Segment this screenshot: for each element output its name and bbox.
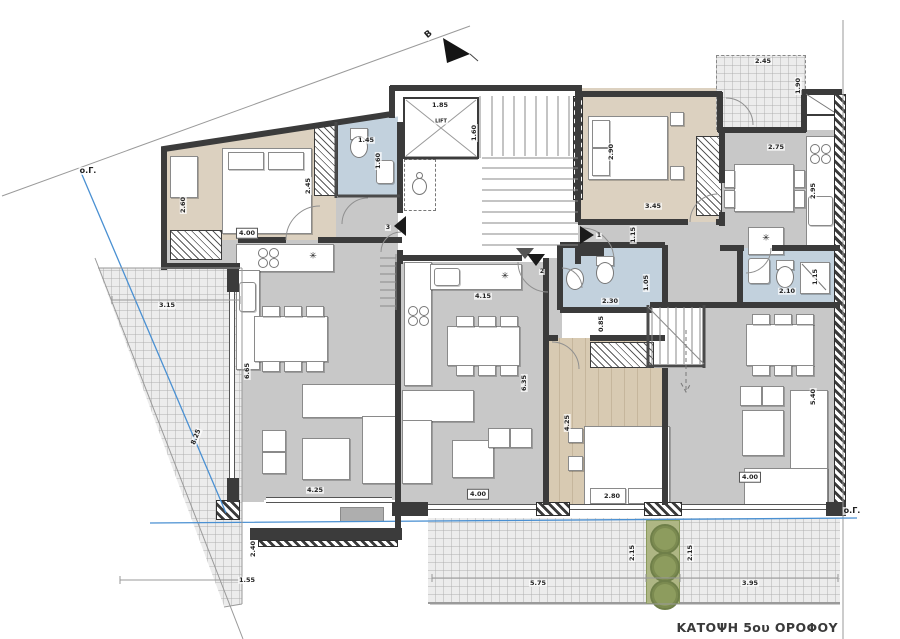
dimension-label: 1.15: [812, 268, 819, 286]
dimension-label: 4.00: [236, 228, 258, 239]
dimension-label: 4.15: [474, 293, 492, 300]
dimension-label: 2.15: [687, 544, 694, 562]
dimension-label: 1.90: [795, 77, 802, 95]
dimension-label: 4.25: [306, 487, 324, 494]
dimension-label: 4.00: [739, 472, 761, 483]
floor-plan-canvas: ο.Γ.ο.Γ.B1.85LIFT1.601.451.602.452.604.0…: [0, 0, 900, 639]
dimension-label: 3.45: [644, 203, 662, 210]
appliance-icon: ✳: [761, 235, 771, 244]
dimension-label: 8.25: [190, 427, 203, 446]
dimension-label: 3.95: [741, 580, 759, 587]
boundary-label: ο.Γ.: [79, 167, 98, 175]
dimension-label: 2.80: [603, 493, 621, 500]
dimension-label: 3.15: [158, 302, 176, 309]
dimension-label: 6.65: [244, 362, 251, 380]
dimension-label: 1.60: [375, 152, 382, 170]
lift-label: LIFT: [434, 120, 448, 125]
dimension-label: 1.55: [238, 577, 256, 584]
boundary-label: ο.Γ.: [843, 507, 862, 515]
dimension-label: 2.15: [629, 544, 636, 562]
entrance-number: 2: [539, 269, 545, 275]
plan-title: ΚΑΤΟΨΗ 5ου ΟΡΟΦΟΥ: [620, 620, 838, 635]
dimension-label: 1.85: [431, 102, 449, 109]
entrance-number: 3: [385, 225, 391, 231]
dimension-label: 1.15: [630, 226, 637, 244]
appliance-icon: ✳: [500, 273, 510, 282]
entrance-number: 1: [596, 233, 602, 239]
dimension-label: 1.45: [357, 137, 375, 144]
north-label: B: [423, 29, 436, 42]
dimension-label: 2.75: [767, 144, 785, 151]
dimension-label: 2.40: [250, 540, 257, 558]
dimension-label: 5.40: [810, 388, 817, 406]
dimension-label: 2.90: [608, 143, 615, 161]
labels-layer: ο.Γ.ο.Γ.B1.85LIFT1.601.451.602.452.604.0…: [0, 0, 900, 639]
dimension-label: 2.45: [754, 58, 772, 65]
dimension-label: 2.45: [305, 177, 312, 195]
dimension-label: 2.10: [778, 288, 796, 295]
dimension-label: 0.85: [598, 315, 605, 333]
dimension-label: 2.30: [601, 298, 619, 305]
dimension-label: 4.00: [467, 489, 489, 500]
dimension-label: 2.95: [810, 182, 817, 200]
dimension-label: 4.25: [564, 414, 571, 432]
dimension-label: 6.35: [521, 374, 528, 392]
appliance-icon: ✳: [308, 253, 318, 262]
dimension-label: 1.60: [471, 124, 478, 142]
dimension-label: 1.05: [643, 274, 650, 292]
dimension-label: 2.60: [180, 196, 187, 214]
dimension-label: 5.75: [529, 580, 547, 587]
